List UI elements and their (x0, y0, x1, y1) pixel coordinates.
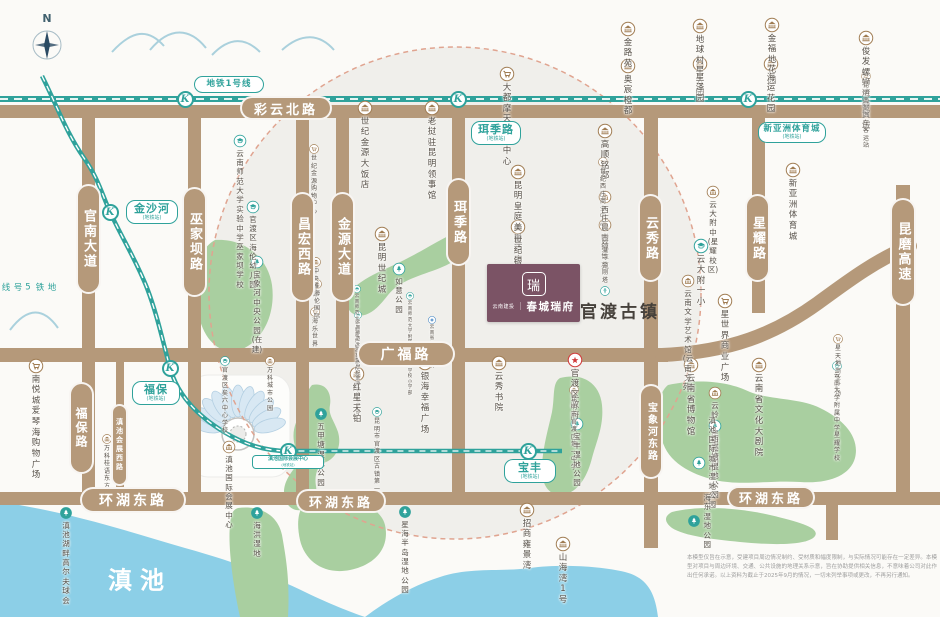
poi-label: 星泽园 (696, 73, 705, 105)
poi-icon-school (234, 135, 247, 148)
poi-icon-building (752, 358, 767, 373)
poi-icon-building (520, 503, 535, 518)
poi-label: 云南省博物馆 (687, 374, 696, 438)
poi-label: 云南省文化大剧院 (755, 374, 764, 459)
road-segment (188, 112, 201, 500)
poi-icon-building (358, 101, 373, 116)
road-label: 滇池会展西路 (111, 404, 128, 486)
poi-label: 山海湾1号 (559, 553, 568, 606)
poi-label: 滇池国际会展中心 (225, 455, 233, 530)
poi-label: 海乐世界 (312, 318, 318, 348)
poi-icon-school (220, 356, 230, 366)
road-segment (644, 108, 658, 548)
poi-label: 新亚洲 体育城 (789, 179, 798, 243)
project-logo: 瑞 云南建投 ｜ 春城瑞府 (487, 264, 580, 322)
poi-label: 官渡区矣六中心学校 (222, 367, 228, 435)
poi-label: 银海幸福广场 (421, 372, 430, 436)
station-callout-sub: (地铁站) (147, 396, 166, 402)
station-callout-name: 福保 (144, 384, 168, 396)
station-callout-sub: (地铁站) (783, 134, 802, 140)
poi-label: 云大附中 (星耀校区) (708, 200, 718, 275)
map-background (0, 0, 940, 617)
metro-logo-K: K (454, 94, 463, 105)
brand-text: 云南建投 ｜ 春城瑞府 (492, 299, 574, 314)
road-label: 昌宏西路 (290, 192, 315, 302)
road-label: 福保路 (69, 382, 94, 474)
metro-station-marker: K (450, 91, 467, 108)
metro-logo-K: K (106, 207, 115, 218)
poi-icon-tree (393, 263, 406, 276)
lake-name-label: 滇池 (108, 561, 172, 596)
station-callout-name: 宝丰 (518, 462, 542, 474)
road-label: 巫家坝路 (182, 187, 207, 297)
poi-label: 星世界 商业广场 (721, 310, 730, 384)
poi-icon-building (598, 124, 613, 139)
poi-icon-tree (693, 457, 706, 470)
poi-icon-tree2 (399, 506, 412, 519)
poi-icon-building (682, 275, 695, 288)
poi-icon-building (693, 19, 708, 34)
logo-emblem-character: 瑞 (527, 275, 540, 294)
poi-label: 滇池湖畔高尔夫球会 (62, 521, 70, 605)
metro-line1-label-text: 地铁1号线 (207, 80, 252, 89)
poi-label: 万科城市公园 (267, 367, 273, 412)
poi-label: 海运花园 (767, 73, 776, 116)
station-callout-name: 金沙河 (134, 203, 170, 215)
road-label: 金源大道 (330, 192, 355, 302)
metro-logo-K: K (166, 363, 175, 374)
station-callout: 珥季路(地铁站) (471, 121, 521, 145)
poi-icon-tree2 (315, 408, 328, 421)
station-callout-name: 新亚洲体育城 (763, 125, 820, 134)
poi-label: 云南大学附属中学 星耀学校 (834, 372, 840, 462)
poi-icon-building (786, 163, 801, 178)
poi-label: 奥宸橙都 (624, 75, 633, 118)
station-callout: 新亚洲体育城(地铁站) (758, 122, 826, 143)
station-callout: 金沙河(地铁站) (126, 200, 178, 224)
poi-label: 海东湿地公园 (704, 493, 712, 549)
road-segment (452, 112, 465, 500)
poi-label: 海伦国际 (314, 290, 320, 320)
poi-icon-school (372, 407, 382, 417)
poi-label: 世纪金源大饭店 (361, 117, 370, 191)
poi-label: 妙湛寺金刚塔 (602, 239, 608, 284)
metro-line5-label: 地铁5号线 (0, 283, 57, 294)
poi-label: 海洪湿地 (253, 521, 261, 559)
poi-label: 云南师范大学实验中学 巫家坝学校 (236, 149, 244, 290)
poi-label: 宝象河 中央公园 (在建) (252, 270, 262, 354)
poi-icon-building (765, 18, 780, 33)
poi-label: 宝丰 湿地公园 (573, 432, 581, 488)
station-callout-sub: (地铁站) (521, 474, 540, 480)
poi-icon-building (511, 165, 526, 180)
poi-label: 如意公园 (395, 277, 403, 315)
road-label: 珥季路 (446, 178, 471, 266)
poi-label: 云大附一小 (697, 255, 706, 308)
metro-logo-K: K (744, 94, 753, 105)
compass: N (28, 12, 66, 64)
road-label: 昆磨高速 (890, 198, 916, 306)
poi-icon-building (492, 356, 507, 371)
logo-emblem: 瑞 (522, 272, 546, 296)
metro-line1-label: 地铁1号线 (194, 76, 264, 93)
brand-developer: 云南建投 (492, 303, 514, 310)
poi-label: 南悦城爱琴海 购物广场 (32, 375, 41, 481)
station-callout: 福保(地铁站) (132, 381, 180, 405)
metro-station-marker: K (102, 204, 119, 221)
poi-icon-school (247, 201, 260, 214)
poi-icon-shop (29, 359, 44, 374)
road-segment (296, 112, 309, 500)
compass-rose (28, 26, 66, 64)
ancient-town-label: 官渡古镇 (580, 298, 660, 323)
poi-label: 红星天铂 (353, 383, 362, 426)
poi-label: 老挝驻昆明领事馆 (428, 117, 437, 202)
station-callout-sub: (地铁站) (281, 463, 294, 467)
poi-icon-shop (833, 334, 843, 344)
poi-icon-school (406, 292, 414, 300)
poi-icon-hospital (428, 316, 436, 324)
brand-project-name: 春城瑞府 (527, 299, 575, 314)
road-segment (0, 105, 940, 118)
station-callout: 滇池国际会展中心(地铁站) (252, 455, 324, 469)
road-label: 广福路 (357, 341, 455, 367)
road-label: 环湖东路 (727, 486, 815, 509)
north-label: N (42, 12, 51, 25)
poi-label: 云秀书院 (495, 372, 504, 415)
metro-station-marker: K (520, 443, 537, 460)
poi-label: 金路苑 (624, 38, 633, 70)
metro-station-marker: K (162, 360, 179, 377)
road-segment (826, 492, 838, 540)
poi-icon-building (556, 537, 571, 552)
poi-icon-tree2 (251, 507, 264, 520)
poi-icon-building (709, 387, 722, 400)
poi-icon-pagoda (600, 286, 610, 296)
poi-icon-school (694, 239, 709, 254)
poi-label: 昆明世纪城 (378, 243, 387, 296)
poi-icon-building (223, 441, 236, 454)
poi-label: 招商雍景湾 (523, 519, 532, 572)
poi-label: 昆明南部汽车客运站 (863, 82, 869, 150)
road-label: 星耀路 (745, 194, 770, 282)
poi-icon-building (859, 31, 874, 46)
location-map: 彩云北路广福路环湖东路环湖东路环湖东路官南大道巫家坝路昌宏西路金源大道珥季路云秀… (0, 0, 940, 617)
poi-icon-shop (718, 294, 733, 309)
poi-icon-building (265, 356, 275, 366)
station-callout-sub: (地铁站) (487, 136, 506, 142)
road-label: 云秀路 (638, 194, 663, 282)
poi-icon-shop (500, 67, 515, 82)
poi-icon-tree2 (60, 507, 73, 520)
poi-label: 星海半岛 湿地公园 (401, 520, 409, 595)
station-callout: 宝丰(地铁站) (504, 459, 556, 483)
road-label: 环湖东路 (80, 487, 186, 513)
brand-divider: ｜ (517, 301, 525, 312)
poi-icon-building (707, 186, 720, 199)
poi-icon-building (425, 101, 440, 116)
road-label: 彩云北路 (240, 96, 332, 120)
poi-icon-building (375, 227, 390, 242)
station-callout-sub: (地铁站) (143, 215, 162, 221)
poi-icon-shop (309, 144, 319, 154)
poi-icon-building (621, 22, 636, 37)
station-callout-name: 珥季路 (478, 124, 514, 136)
poi-label: 万科 桂语东方 (104, 445, 110, 490)
poi-icon-star (568, 353, 583, 368)
road-label: 环湖东路 (296, 489, 386, 513)
metro-station-marker: K (177, 91, 194, 108)
disclaimer-text: 本模型仅旨在示意，受建项目周边情况制约、受材质和幅度限制，与实际情况可能存在一定… (687, 554, 937, 580)
metro-logo-K: K (524, 446, 533, 457)
road-label: 宝象河东路 (639, 384, 663, 479)
metro-logo-K: K (181, 94, 190, 105)
road-label: 官南大道 (76, 184, 101, 294)
poi-icon-tree2 (688, 515, 701, 528)
metro-station-marker: K (740, 91, 757, 108)
